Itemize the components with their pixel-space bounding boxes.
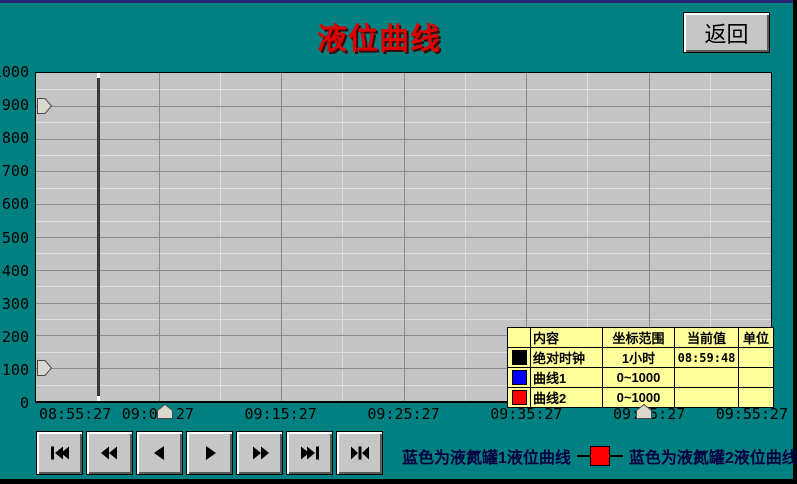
legend-cell: 曲线2 <box>531 388 603 408</box>
legend-header-cell <box>508 328 531 348</box>
y-tick-label: 700 <box>2 162 29 180</box>
legend-cell <box>739 348 774 368</box>
legend-header-cell: 单位 <box>739 328 774 348</box>
y-slider-handle[interactable] <box>37 98 52 119</box>
skip-to-end-icon <box>298 445 322 461</box>
nav-jump-to-cursor-button[interactable] <box>336 431 383 475</box>
time-cursor-line[interactable] <box>97 73 100 401</box>
legend-swatch-cell <box>508 388 531 408</box>
legend-marker-square <box>590 446 610 466</box>
gridline <box>159 73 160 401</box>
legend-cell: 曲线1 <box>531 368 603 388</box>
gridline <box>404 73 405 401</box>
cursor-bottom-notch <box>97 396 100 401</box>
legend-cell <box>675 388 739 408</box>
curve-color-swatch <box>512 350 527 365</box>
legend-swatch-cell <box>508 348 531 368</box>
page-title: 液位曲线 <box>279 14 479 50</box>
y-tick-label: 200 <box>2 328 29 346</box>
fast-forward-icon <box>248 445 272 461</box>
footer-legend-text-2: 蓝色为液氮罐2液位曲线 <box>629 444 797 468</box>
legend-cell: 08:59:48 <box>675 348 739 368</box>
y-tick-label: 500 <box>2 229 29 247</box>
legend-row: 绝对时钟1小时08:59:48 <box>508 348 774 368</box>
trend-nav-controls <box>36 431 383 475</box>
back-button[interactable]: 返回 <box>683 12 770 53</box>
jump-to-cursor-icon <box>348 445 372 461</box>
nav-step-forward-button[interactable] <box>186 431 233 475</box>
legend-cell: 0~1000 <box>603 368 675 388</box>
gridline <box>281 73 282 401</box>
curve-color-swatch <box>512 370 527 385</box>
y-axis-labels: 01002003004005006007008009001000 <box>0 72 32 403</box>
nav-rewind-button[interactable] <box>86 431 133 475</box>
x-slider-handle[interactable] <box>157 404 173 424</box>
nav-skip-to-start-button[interactable] <box>36 431 83 475</box>
nav-fast-forward-button[interactable] <box>236 431 283 475</box>
bottom-border <box>0 479 797 484</box>
rewind-icon <box>98 445 122 461</box>
y-slider-handle[interactable] <box>37 360 52 381</box>
x-slider-handle[interactable] <box>636 404 652 424</box>
top-border <box>0 0 797 3</box>
skip-to-start-icon <box>48 445 72 461</box>
curve2-legend-marker <box>577 445 623 467</box>
step-back-icon <box>148 445 172 461</box>
step-forward-icon <box>198 445 222 461</box>
legend-swatch-cell <box>508 368 531 388</box>
legend-row: 曲线10~1000 <box>508 368 774 388</box>
legend-cell <box>739 388 774 408</box>
legend-header-row: 内容坐标范围当前值单位 <box>508 328 774 348</box>
y-tick-label: 1000 <box>0 63 29 81</box>
footer-legend: 蓝色为液氮罐1液位曲线 蓝色为液氮罐2液位曲线 <box>402 443 794 469</box>
right-border <box>793 0 797 484</box>
cursor-top-notch <box>97 73 100 78</box>
legend-header-cell: 坐标范围 <box>603 328 675 348</box>
nav-step-back-button[interactable] <box>136 431 183 475</box>
y-tick-label: 900 <box>2 96 29 114</box>
legend-cell <box>739 368 774 388</box>
y-tick-label: 100 <box>2 361 29 379</box>
nav-skip-to-end-button[interactable] <box>286 431 333 475</box>
curve-legend-table: 内容坐标范围当前值单位绝对时钟1小时08:59:48曲线10~1000曲线20~… <box>507 327 774 408</box>
legend-cell: 绝对时钟 <box>531 348 603 368</box>
y-tick-label: 0 <box>20 394 29 412</box>
legend-cell: 1小时 <box>603 348 675 368</box>
y-tick-label: 800 <box>2 129 29 147</box>
legend-cell <box>675 368 739 388</box>
curve-legend-table-body: 内容坐标范围当前值单位绝对时钟1小时08:59:48曲线10~1000曲线20~… <box>508 328 774 408</box>
legend-header-cell: 内容 <box>531 328 603 348</box>
y-tick-label: 400 <box>2 262 29 280</box>
legend-header-cell: 当前值 <box>675 328 739 348</box>
hmi-screen: 液位曲线 返回 01002003004005006007008009001000… <box>0 0 797 484</box>
y-tick-label: 600 <box>2 195 29 213</box>
y-tick-label: 300 <box>2 295 29 313</box>
back-button-label: 返回 <box>704 17 748 49</box>
curve-color-swatch <box>512 390 527 405</box>
footer-legend-text-1: 蓝色为液氮罐1液位曲线 <box>402 444 571 468</box>
